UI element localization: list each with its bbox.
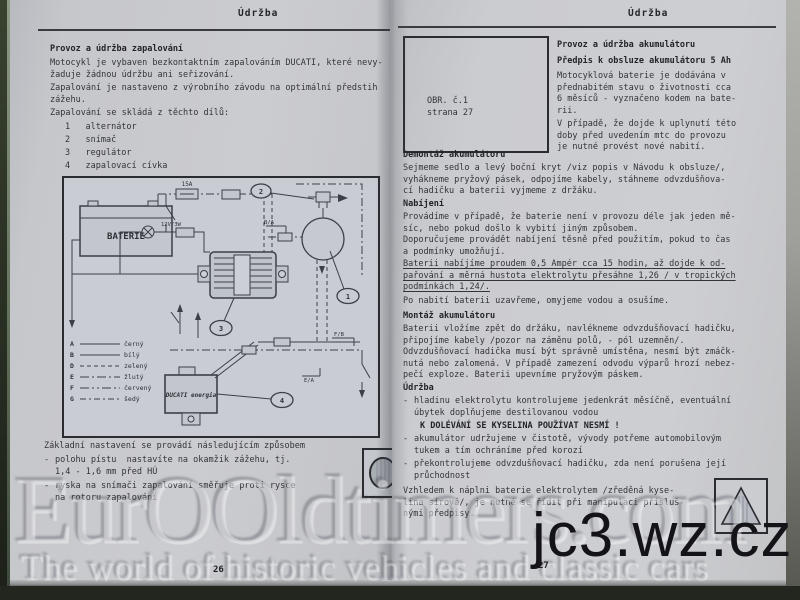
table-background-bottom xyxy=(0,586,800,600)
setup-intro: Základní nastavení se provádí následujíc… xyxy=(44,441,394,453)
acid-warning-text: K DOLÉVÁNÍ SE KYSELINA POUŽÍVAT NESMÍ ! xyxy=(420,421,620,433)
legend-code: B xyxy=(70,351,74,359)
legend-code: F xyxy=(70,384,74,392)
legend-color: žlutý xyxy=(124,373,144,381)
header-rule xyxy=(38,29,390,31)
callout-2-badge: 2 xyxy=(251,184,314,199)
paragraph-underlined: Baterii nabíjíme proudem 0,5 Ampér cca 1… xyxy=(403,259,775,294)
callout-1-badge: 1 xyxy=(330,251,359,304)
subsection-title-battery: Předpis k obsluze akumulátoru 5 Ah xyxy=(557,56,731,68)
cdi-unit-label: DUCATI energia xyxy=(165,392,217,399)
part-item: 2 snímač xyxy=(65,135,116,147)
flywheel-alternator-symbol xyxy=(302,218,344,274)
maintenance-item-text: akumulátor udržujeme v čistotě, vývody p… xyxy=(414,434,721,457)
part-item: 4 zapalovací cívka xyxy=(65,161,167,173)
battery-symbol: BATERIE xyxy=(80,201,172,256)
callout-4-number: 4 xyxy=(280,397,284,405)
spark-plug-symbol xyxy=(308,192,348,218)
legend-code: D xyxy=(70,362,74,370)
part-name: zapalovací cívka xyxy=(85,161,167,171)
maintenance-item-text: hladinu elektrolytu kontrolujeme jedenkr… xyxy=(414,396,731,419)
legend-color: šedý xyxy=(124,395,140,403)
part-name: regulátor xyxy=(85,148,131,158)
callout-3-badge: 3 xyxy=(210,298,234,336)
wire-color-legend: A černý B bílý D zelený E žlutý F xyxy=(70,340,151,403)
section-title-removal: Demontáž akumulátoru xyxy=(403,150,505,162)
part-item: 3 regulátor xyxy=(65,148,132,160)
wiring-diagram-svg: BATERIE 15A xyxy=(64,178,374,432)
handlebar-switch-symbols xyxy=(171,304,201,338)
paragraph: V případě, že dojde k uplynutí této doby… xyxy=(557,119,782,154)
page-header: Údržba xyxy=(238,8,278,19)
paragraph: Baterii vložíme zpět do držáku, navlékne… xyxy=(403,324,775,382)
section-title-battery: Provoz a údržba akumulátoru xyxy=(557,40,695,52)
figure-reference-line2: strana 27 xyxy=(427,108,473,120)
regulator-symbol xyxy=(198,252,288,298)
part-number: 4 xyxy=(65,161,70,171)
figure-reference-line1: OBR. č.1 xyxy=(427,96,468,108)
maintenance-item: - akumulátor udržujeme v čistotě, vývody… xyxy=(403,434,775,457)
ground-switch-symbol xyxy=(359,350,370,398)
legend-color: černý xyxy=(124,340,144,348)
section-title-charging: Nabíjení xyxy=(403,199,444,211)
connector-symbol xyxy=(274,338,290,346)
section-title-installation: Montáž akumulátoru xyxy=(403,311,495,323)
callout-4-badge: 4 xyxy=(217,393,293,408)
part-number: 3 xyxy=(65,148,70,158)
connector-symbol xyxy=(242,346,256,354)
cdi-unit-symbol: DUCATI energia xyxy=(165,367,217,425)
connector-symbol xyxy=(176,228,194,237)
legend-code: A xyxy=(70,340,74,348)
callout-3-number: 3 xyxy=(219,325,223,333)
legend-color: červený xyxy=(124,384,151,392)
header-rule xyxy=(398,26,776,28)
wire-label-right: F/B xyxy=(334,332,345,338)
fuse-label: 15A xyxy=(182,181,193,188)
paragraph: Zapalování je nastaveno z výrobního závo… xyxy=(50,83,394,106)
page-number: 26 xyxy=(213,565,224,575)
legend-code: E xyxy=(70,373,74,381)
part-number: 1 xyxy=(65,122,70,132)
wiring-diagram: BATERIE 15A xyxy=(62,176,380,438)
section-title-ignition: Provoz a údržba zapalování xyxy=(50,44,183,56)
paragraph: Zapalování se skládá z těchto dílů: xyxy=(50,108,394,120)
maintenance-item: - hladinu elektrolytu kontrolujeme jeden… xyxy=(403,396,775,419)
connector-symbol xyxy=(222,190,240,199)
wire-label-switch: E/A xyxy=(304,378,315,384)
callout-1-number: 1 xyxy=(346,293,350,301)
watermark-url: jc3.wz.cz xyxy=(532,505,792,567)
paragraph: Po nabití baterii uzavřeme, omyjeme vodo… xyxy=(403,296,775,308)
wire-label-pickup: B/A xyxy=(264,220,275,226)
legend-color: bílý xyxy=(124,351,140,359)
book-photo: Údržba Provoz a údržba zapalování Motocy… xyxy=(0,0,800,600)
part-name: alternátor xyxy=(85,122,136,132)
page-header: Údržba xyxy=(628,8,668,19)
legend-code: G xyxy=(70,395,74,403)
figure-reference-box: OBR. č.1 strana 27 xyxy=(403,36,549,153)
paragraph: Sejmeme sedlo a levý boční kryt /viz pop… xyxy=(403,163,775,198)
connector-symbol xyxy=(278,233,292,241)
part-number: 2 xyxy=(65,135,70,145)
paragraph: Motocykl je vybaven bezkontaktním zapalo… xyxy=(50,58,394,81)
paragraph: Motocyklová baterie je dodávána v předna… xyxy=(557,71,782,117)
battery-label: BATERIE xyxy=(107,232,145,242)
fuse-symbol: 15A xyxy=(176,181,198,199)
callout-2-number: 2 xyxy=(259,188,263,196)
part-item: 1 alternátor xyxy=(65,122,137,134)
legend-color: zelený xyxy=(124,362,148,370)
part-name: snímač xyxy=(85,135,116,145)
lamp-label: 12V/3W xyxy=(161,222,182,228)
paragraph: Provádíme v případě, že baterie není v p… xyxy=(403,212,775,258)
